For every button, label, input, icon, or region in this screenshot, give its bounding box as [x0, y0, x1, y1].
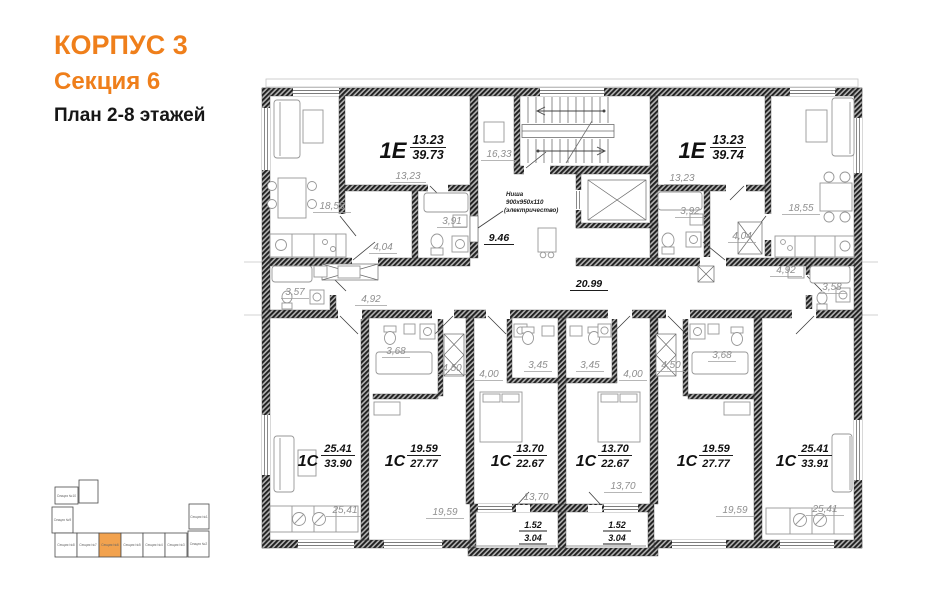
- room-area-s2-bath: 3,68: [386, 346, 406, 357]
- keyplan-section-10: Секция №10: [57, 494, 76, 498]
- room-area-s4-hall: 4,00: [623, 369, 643, 380]
- keyplan-section-5: Секция №5: [123, 543, 141, 547]
- room-area-hall-right: 4,04: [732, 231, 752, 242]
- keyplan-section-4: Секция №4: [145, 543, 163, 547]
- room-area-s1-hall: 4,92: [361, 294, 381, 305]
- apartment-s2-type: 1С: [385, 453, 406, 470]
- keyplan-section-6: Секция №6: [101, 543, 119, 547]
- niche-note-line2: 900х950х110: [506, 199, 544, 206]
- keyplan-section-7: Секция №7: [79, 543, 97, 547]
- apartment-s3-total-area: 22.67: [515, 458, 544, 470]
- room-area-s3-hall: 4,00: [479, 369, 499, 380]
- room-area-s1-room: 25,41: [331, 505, 357, 516]
- keyplan-section-2: Секция №2: [190, 542, 208, 546]
- room-area-s3-bath: 3,45: [528, 360, 548, 371]
- balcony2-area-label: 1.52: [608, 520, 626, 530]
- apartment-1e-left-type: 1Е: [380, 138, 408, 163]
- apartment-s2-living-area: 19.59: [410, 443, 438, 455]
- elevator: [577, 180, 647, 220]
- room-area-bedroom-left: 13,23: [395, 171, 420, 182]
- room-area-landing: 16,33: [486, 149, 511, 160]
- apartment-s5-total-area: 27.77: [701, 458, 730, 470]
- apartment-s5-type: 1С: [677, 453, 698, 470]
- niche-note-line3: (электричество): [504, 207, 558, 214]
- room-area-s6-bath: 3,58: [822, 282, 842, 293]
- apartment-s1-living-area: 25.41: [323, 443, 352, 455]
- room-area-s5-bath: 3,68: [712, 350, 732, 361]
- keyplan-section-1: Секция №1: [190, 515, 208, 519]
- apartment-s1-total-area: 33.90: [324, 458, 352, 470]
- room-area-s6-hall: 4,92: [776, 265, 796, 276]
- room-area-s2-hall: 4,50: [442, 363, 462, 374]
- lobby-area-label: 9.46: [489, 232, 510, 244]
- apartment-s6-type: 1С: [776, 453, 797, 470]
- corridor-area-label: 20.99: [575, 278, 602, 290]
- room-area-s1-bath: 3,57: [285, 287, 305, 298]
- key-plan: Секция №10 Секция №9 Секция №8 Секция №7…: [52, 480, 209, 557]
- apartment-s6-living-area: 25.41: [800, 443, 829, 455]
- balcony1-area-label: 1.52: [524, 520, 542, 530]
- floor-plan-page: КОРПУС 3 Секция 6 План 2-8 этажей: [0, 0, 941, 600]
- room-area-bedroom-right: 13,23: [669, 173, 694, 184]
- apartment-1e-right-total-area: 39.74: [712, 148, 743, 162]
- keyplan-section-8: Секция №8: [57, 543, 75, 547]
- apartment-1e-right-living-area: 13.23: [712, 133, 743, 147]
- apartment-1e-left-living-area: 13.23: [412, 133, 443, 147]
- room-area-s6-room: 25,41: [811, 504, 837, 515]
- apartment-s3-living-area: 13.70: [516, 443, 544, 455]
- apartment-s5-living-area: 19.59: [702, 443, 730, 455]
- room-area-s3-room: 13,70: [523, 492, 548, 503]
- niche-note-line1: Ниша: [506, 191, 524, 198]
- apartment-s4-type: 1С: [576, 453, 597, 470]
- apartment-s4-total-area: 22.67: [600, 458, 629, 470]
- apartment-s1-type: 1С: [298, 453, 319, 470]
- room-area-bath-left: 3,91: [442, 216, 461, 227]
- staircase: [521, 97, 615, 163]
- room-area-s4-room: 13,70: [610, 481, 635, 492]
- room-area-living-right: 18,55: [788, 203, 813, 214]
- room-area-s2-room: 19,59: [432, 507, 457, 518]
- apartment-1e-left-total-area: 39.73: [412, 148, 443, 162]
- apartment-s6-total-area: 33.91: [801, 458, 829, 470]
- floor-plan-drawing: 1Е 13.23 39.73 1Е 13.23 39.74 1С 25.41 3…: [0, 0, 941, 600]
- room-area-living-left: 18,55: [319, 201, 344, 212]
- keyplan-section-9: Секция №9: [54, 518, 72, 522]
- apartment-1e-right-type: 1Е: [679, 138, 707, 163]
- balcony2-total-label: 3.04: [608, 533, 626, 543]
- walls: [262, 88, 862, 556]
- keyplan-section-3: Секция №3: [167, 543, 185, 547]
- room-area-s5-room: 19,59: [722, 505, 747, 516]
- room-area-s4-bath: 3,45: [580, 360, 600, 371]
- room-area-s5-hall: 4,50: [661, 360, 681, 371]
- room-area-hall-left: 4,04: [373, 242, 393, 253]
- room-area-bath-right: 3,92: [680, 206, 700, 217]
- balcony1-total-label: 3.04: [524, 533, 542, 543]
- apartment-s4-living-area: 13.70: [601, 443, 629, 455]
- apartment-s2-total-area: 27.77: [409, 458, 438, 470]
- apartment-s3-type: 1С: [491, 453, 512, 470]
